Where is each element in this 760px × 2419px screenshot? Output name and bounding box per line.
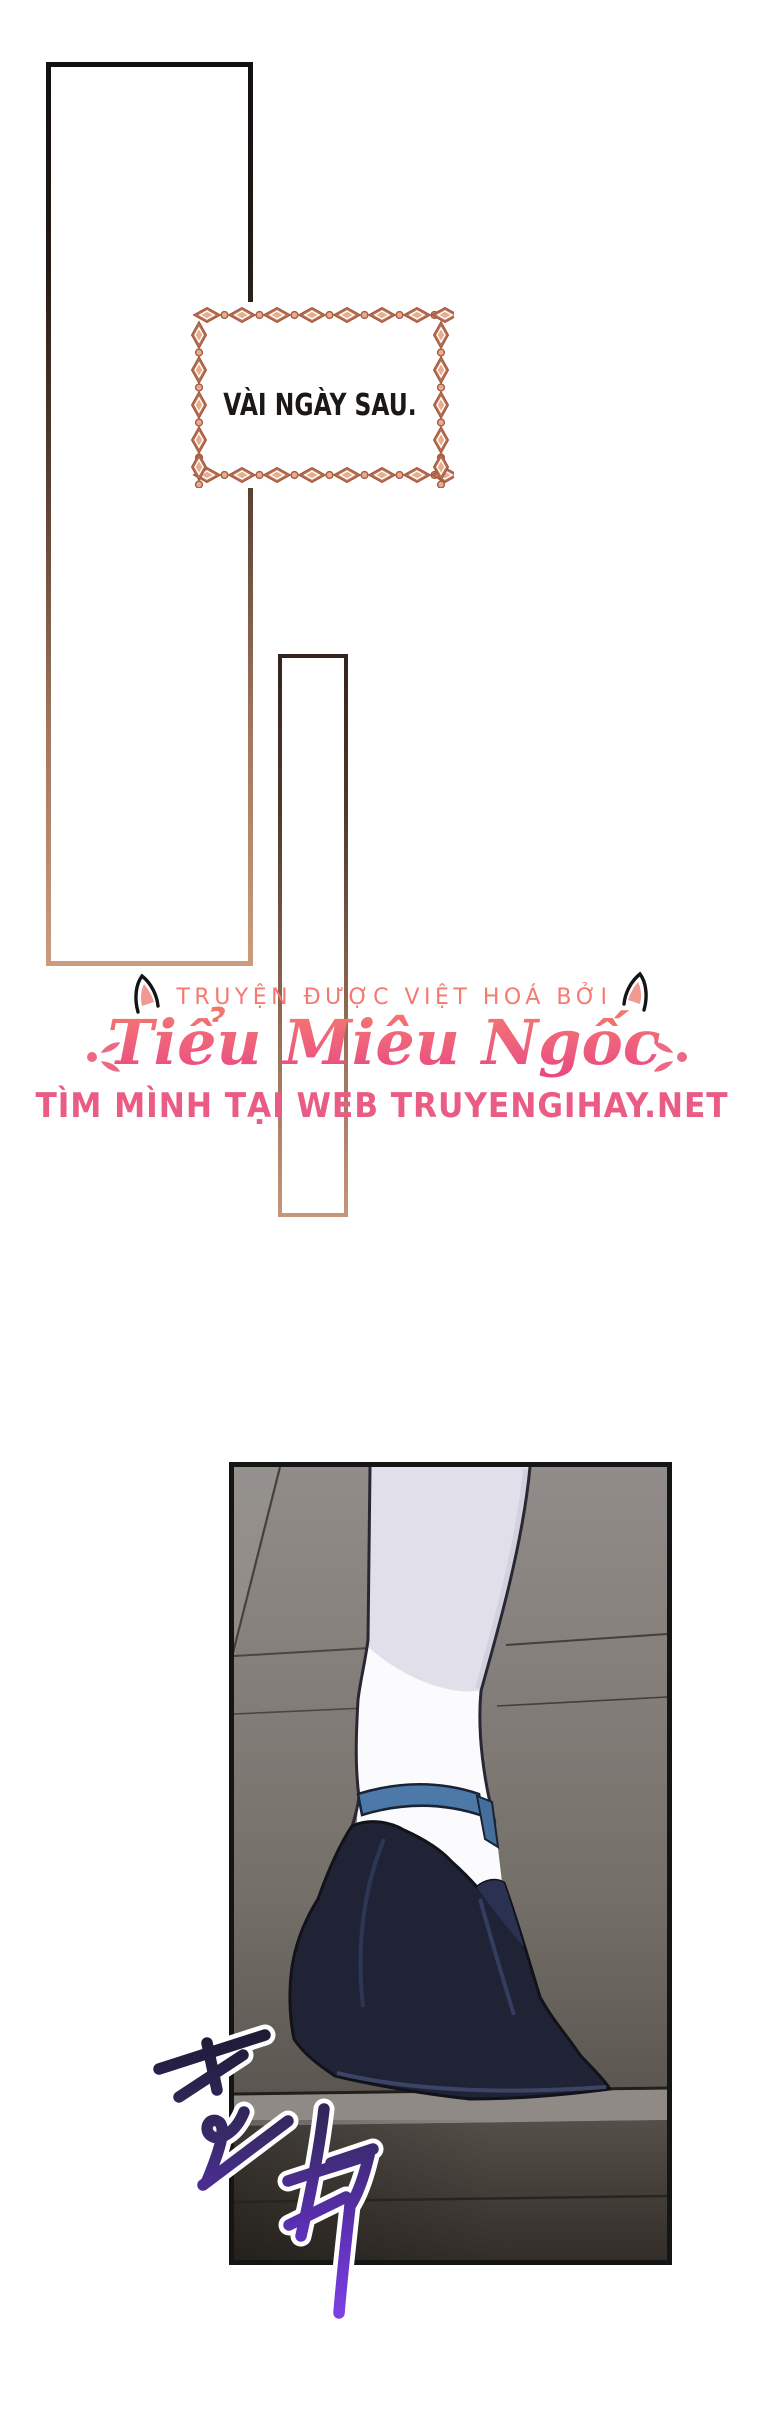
credit-line-website: TÌM MÌNH TẠI WEB TRUYENGIHAY.NET — [35, 1086, 728, 1126]
caption-box: VÀI NGÀY SAU. — [186, 302, 454, 488]
sfx-clack-text: 또각 — [130, 2015, 390, 2365]
comic-page: VÀI NGÀY SAU. TRUYỆN ĐƯỢC VIỆT HOÁ BỞI T… — [0, 0, 760, 2419]
narrow-frame-rect — [278, 654, 348, 1217]
caption-text: VÀI NGÀY SAU. — [215, 388, 424, 423]
tall-frame-rect — [46, 62, 253, 966]
translator-group-title: Tiểu Miêu Ngốc — [107, 1004, 660, 1082]
